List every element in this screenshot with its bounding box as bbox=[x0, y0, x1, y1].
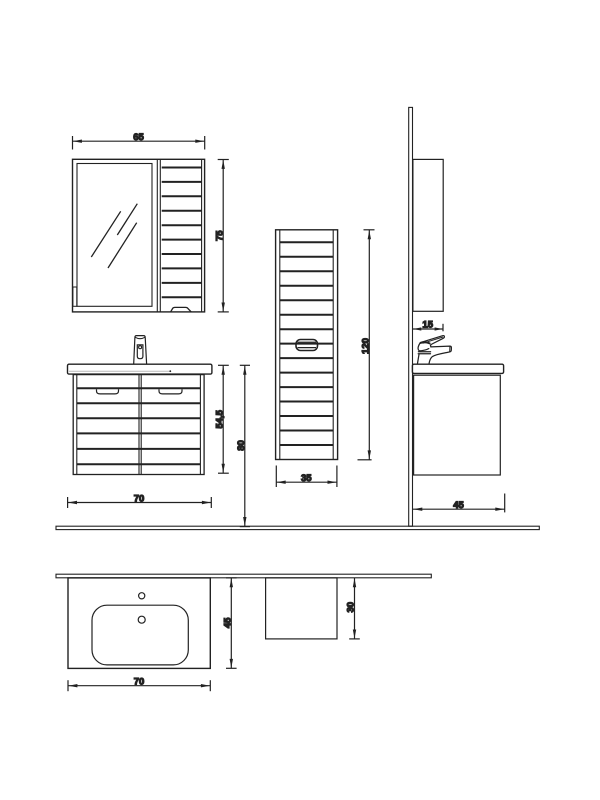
svg-text:70: 70 bbox=[134, 493, 145, 504]
svg-text:120: 120 bbox=[361, 338, 372, 354]
svg-text:45: 45 bbox=[453, 500, 464, 511]
svg-text:35: 35 bbox=[301, 473, 312, 484]
svg-text:75: 75 bbox=[214, 230, 225, 241]
svg-text:15: 15 bbox=[422, 319, 433, 330]
svg-text:65: 65 bbox=[133, 132, 144, 143]
svg-text:70: 70 bbox=[134, 677, 145, 688]
svg-text:54,5: 54,5 bbox=[214, 409, 225, 428]
svg-text:30: 30 bbox=[346, 602, 357, 613]
svg-text:45: 45 bbox=[223, 617, 234, 628]
svg-text:80: 80 bbox=[236, 440, 247, 451]
